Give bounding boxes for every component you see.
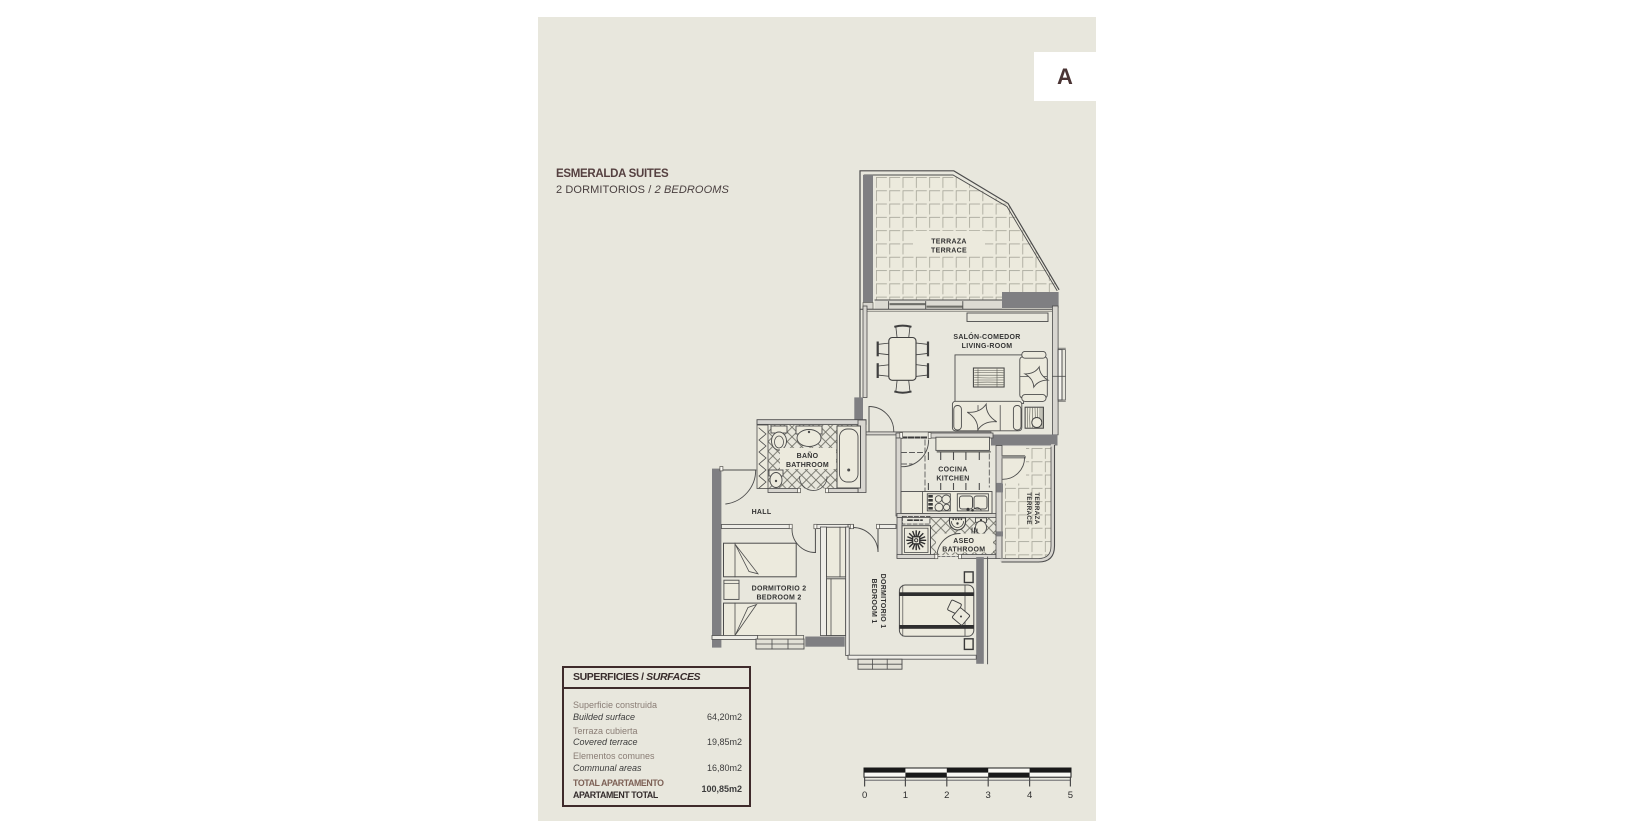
svg-text:DORMITORIO 1: DORMITORIO 1 [879, 574, 886, 629]
svg-text:3: 3 [986, 790, 991, 801]
svg-text:COCINA: COCINA [938, 467, 967, 474]
svg-text:KITCHEN: KITCHEN [936, 476, 969, 483]
svg-text:0: 0 [862, 790, 867, 801]
svg-text:HALL: HALL [752, 509, 772, 516]
svg-text:TERRACE: TERRACE [1025, 492, 1032, 525]
svg-text:DORMITORIO 2: DORMITORIO 2 [752, 586, 807, 593]
svg-text:1: 1 [903, 790, 908, 801]
svg-text:ASEO: ASEO [953, 538, 974, 545]
svg-text:BATHROOM: BATHROOM [786, 462, 829, 469]
svg-text:5: 5 [1068, 790, 1073, 801]
svg-text:BEDROOM 2: BEDROOM 2 [756, 595, 801, 602]
svg-text:SALÓN-COMEDOR: SALÓN-COMEDOR [953, 332, 1020, 341]
svg-text:LIVING-ROOM: LIVING-ROOM [962, 343, 1013, 350]
svg-text:TERRACE: TERRACE [931, 248, 967, 255]
svg-text:4: 4 [1027, 790, 1032, 801]
svg-text:BATHROOM: BATHROOM [942, 547, 985, 554]
svg-text:2: 2 [944, 790, 949, 801]
svg-text:TERRAZA: TERRAZA [931, 239, 967, 246]
svg-text:TERRAZA: TERRAZA [1033, 492, 1040, 524]
svg-text:BAÑO: BAÑO [797, 451, 819, 460]
svg-text:BEDROOM 1: BEDROOM 1 [870, 578, 877, 623]
